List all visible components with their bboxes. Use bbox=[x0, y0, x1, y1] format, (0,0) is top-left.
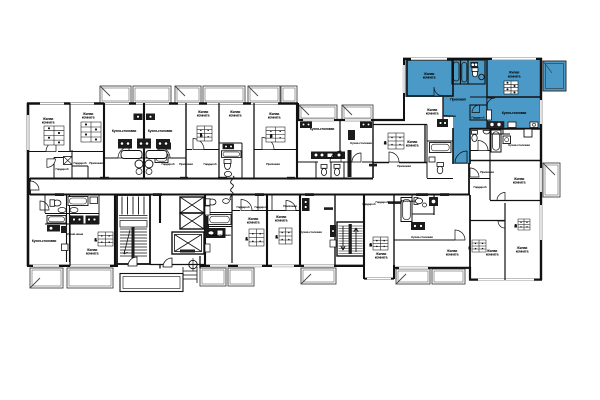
svg-text:комната: комната bbox=[229, 114, 242, 118]
svg-text:Прихожая: Прихожая bbox=[480, 170, 494, 174]
svg-text:Гардероб: Гардероб bbox=[74, 161, 87, 165]
svg-text:Кухня-столовая: Кухня-столовая bbox=[300, 230, 322, 234]
svg-text:комната: комната bbox=[423, 76, 436, 80]
svg-text:Прихожая: Прихожая bbox=[179, 162, 193, 166]
svg-text:Кухня-столовая: Кухня-столовая bbox=[32, 239, 57, 243]
svg-text:Гардероб: Гардероб bbox=[237, 205, 250, 209]
svg-text:комната: комната bbox=[446, 253, 459, 257]
svg-text:комната: комната bbox=[42, 121, 55, 125]
svg-text:комната: комната bbox=[508, 74, 521, 78]
svg-text:Гардероб: Гардероб bbox=[204, 162, 217, 166]
svg-text:Кухня-столовая: Кухня-столовая bbox=[502, 111, 527, 115]
svg-text:комната: комната bbox=[247, 221, 260, 225]
svg-text:Прихожая: Прихожая bbox=[283, 204, 297, 208]
svg-text:комната: комната bbox=[82, 116, 95, 120]
svg-text:комната: комната bbox=[268, 116, 281, 120]
svg-text:Кухня-столовая: Кухня-столовая bbox=[508, 143, 530, 147]
svg-text:комната: комната bbox=[486, 253, 499, 257]
svg-text:Прихожая: Прихожая bbox=[450, 98, 466, 102]
svg-text:комната: комната bbox=[426, 112, 439, 116]
svg-text:Кухня-столовая: Кухня-столовая bbox=[411, 235, 433, 239]
svg-text:Прихожая: Прихожая bbox=[401, 199, 415, 203]
svg-text:Гардероб: Гардероб bbox=[472, 116, 485, 120]
svg-text:комната: комната bbox=[516, 250, 529, 254]
svg-text:1: 1 bbox=[246, 237, 248, 241]
svg-text:Кухня-столовая: Кухня-столовая bbox=[350, 141, 372, 145]
svg-text:Гардероб: Гардероб bbox=[255, 205, 268, 209]
svg-text:1: 1 bbox=[469, 246, 471, 250]
svg-text:Кухня-столовая: Кухня-столовая bbox=[310, 127, 335, 131]
svg-text:1: 1 bbox=[276, 235, 278, 239]
svg-text:Кухня-ниша: Кухня-ниша bbox=[67, 232, 84, 236]
svg-text:Кухня-столовая: Кухня-столовая bbox=[209, 233, 231, 237]
svg-text:комната: комната bbox=[513, 181, 526, 185]
svg-text:Гардероб: Гардероб bbox=[162, 162, 175, 166]
svg-text:комната: комната bbox=[86, 252, 99, 256]
svg-text:Кухня-столовая: Кухня-столовая bbox=[112, 129, 137, 133]
svg-text:2: 2 bbox=[370, 243, 372, 247]
svg-text:Прихожая: Прихожая bbox=[89, 161, 103, 165]
svg-text:2: 2 bbox=[515, 224, 517, 228]
svg-text:Прихожая: Прихожая bbox=[266, 162, 280, 166]
svg-text:Гардероб: Гардероб bbox=[376, 200, 389, 204]
svg-text:Гардероб: Гардероб bbox=[56, 167, 69, 171]
svg-text:Прихожая: Прихожая bbox=[397, 164, 411, 168]
svg-text:1: 1 bbox=[95, 238, 97, 242]
svg-text:Гардероб: Гардероб bbox=[474, 185, 487, 189]
svg-text:комната: комната bbox=[275, 219, 288, 223]
svg-text:комната: комната bbox=[406, 144, 419, 148]
svg-text:Кухня-столовая: Кухня-столовая bbox=[148, 129, 173, 133]
svg-text:комната: комната bbox=[197, 114, 210, 118]
svg-text:Гардероб: Гардероб bbox=[363, 202, 376, 206]
svg-text:комната: комната bbox=[375, 256, 388, 260]
svg-text:2: 2 bbox=[384, 141, 386, 145]
svg-text:Уборная: Уборная bbox=[444, 114, 456, 118]
